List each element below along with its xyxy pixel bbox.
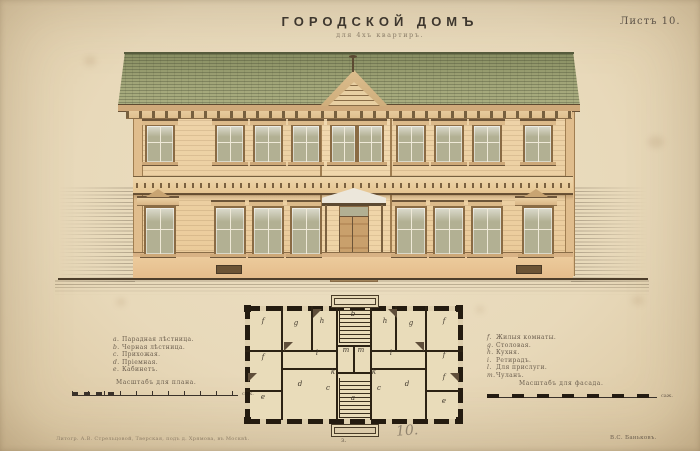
plan-room-label: f	[262, 353, 265, 361]
facade-scale-label: Масштабъ для фасада.	[519, 380, 603, 387]
window-sill	[250, 162, 286, 166]
plan-partition	[281, 306, 283, 420]
window-sill	[354, 162, 387, 166]
plan-room-label: c	[326, 384, 330, 392]
plan-room-label: l	[390, 349, 392, 357]
legend-text: Пріемная.	[122, 359, 158, 366]
plan-porch-top	[331, 295, 379, 308]
facade-window-lower	[214, 206, 246, 256]
canopy-post-left	[325, 205, 327, 253]
lithograph-plate: ГОРОДСКОЙ ДОМЪ для 4хъ квартиръ. Листъ 1…	[0, 0, 700, 451]
legend-key: e.	[113, 366, 122, 374]
plan-wall-corner	[456, 305, 463, 312]
facade-window-upper	[215, 124, 245, 164]
facade-window-upper	[330, 124, 357, 164]
window-hood	[212, 119, 248, 125]
window-hood	[468, 200, 502, 206]
legend-item: c.Прихожая.	[113, 351, 243, 359]
legend-right: f.Жилыя комнаты. g.Столовая. h.Кухня. i.…	[487, 334, 617, 380]
plan-room-label: a	[351, 394, 355, 402]
page-subtitle: для 4хъ квартиръ.	[230, 31, 530, 39]
legend-key: b.	[113, 344, 122, 352]
sky-hatching-left	[55, 186, 135, 282]
plan-scale-ruler	[72, 395, 238, 396]
legend-text: Ретирадъ.	[496, 357, 531, 364]
facade-window-lower	[433, 206, 465, 256]
legend-text: Для прислуги.	[496, 364, 547, 371]
legend-item: a.Парадная лѣстница.	[113, 336, 243, 344]
plan-partition	[425, 390, 460, 392]
plan-partition	[370, 350, 463, 352]
legend-text: Кабинетъ.	[122, 366, 158, 373]
window-hood	[211, 200, 245, 206]
facade-window-lower	[252, 206, 284, 256]
eave-brackets	[126, 111, 572, 119]
legend-key: a.	[113, 336, 122, 344]
legend-key: g.	[487, 342, 496, 350]
facade-window-upper	[434, 124, 464, 164]
facade-window-upper	[357, 124, 384, 164]
legend-key: d.	[113, 359, 122, 367]
legend-item: g.Столовая.	[487, 342, 617, 350]
legend-left: a.Парадная лѣстница. b.Черная лѣстница. …	[113, 336, 243, 374]
plan-room-label: d	[298, 380, 302, 388]
window-sill	[469, 162, 505, 166]
window-hood	[249, 200, 283, 206]
plan-partition	[370, 368, 427, 370]
plan-partition	[245, 390, 283, 392]
plan-partition	[281, 368, 338, 370]
lithographer-imprint: Литогр. А.В. Стрельцовой, Тверская, подъ…	[56, 436, 249, 442]
facade-window-lower	[522, 206, 554, 256]
window-sill	[212, 162, 248, 166]
canopy-post-right	[381, 205, 383, 253]
sky-hatching-right	[571, 186, 651, 282]
mid-cornice-dentils	[136, 183, 570, 188]
plan-wall-corner	[456, 417, 463, 424]
basement-vent-left	[216, 265, 242, 274]
sheet-number: Листъ 10.	[620, 16, 690, 27]
window-hood	[430, 200, 464, 206]
window-hood	[392, 200, 426, 206]
window-hood	[469, 119, 505, 125]
plan-partition	[353, 345, 355, 374]
ground-line	[58, 278, 648, 280]
plan-wall-corner	[244, 417, 251, 424]
window-sill	[520, 162, 556, 166]
page-title: ГОРОДСКОЙ ДОМЪ	[230, 14, 530, 29]
legend-text: Прихожая.	[122, 351, 160, 358]
window-sill	[431, 162, 467, 166]
plan-wall-corner	[244, 305, 251, 312]
facade-window-lower	[290, 206, 322, 256]
legend-key: m.	[487, 372, 496, 380]
window-sill	[140, 254, 176, 258]
facade-window-lower	[471, 206, 503, 256]
window-hood	[287, 200, 321, 206]
window-hood	[393, 119, 429, 125]
window-hood	[142, 119, 178, 125]
window-sill	[288, 162, 324, 166]
handwritten-sheet-number: 10.	[395, 422, 418, 440]
window-sill	[518, 254, 554, 258]
plinth	[133, 257, 573, 278]
plan-room-label: l	[316, 349, 318, 357]
window-hood	[431, 119, 467, 125]
plan-room-label: c	[377, 384, 381, 392]
facade-window-upper	[145, 124, 175, 164]
paper-stain	[632, 296, 644, 305]
paper-stain	[116, 298, 126, 306]
ground-hatching	[55, 280, 649, 295]
plan-room-label: g	[409, 319, 413, 327]
legend-item: f.Жилыя комнаты.	[487, 334, 617, 342]
plan-outer-wall	[458, 306, 463, 424]
plan-room-label: g	[294, 319, 298, 327]
facade-scale-blocks	[487, 394, 658, 398]
plan-partition	[245, 350, 338, 352]
plan-scale-blocks	[72, 392, 121, 395]
window-sill	[467, 254, 503, 258]
legend-item: m.Чуланъ.	[487, 372, 617, 380]
plan-partition	[336, 306, 338, 420]
window-sill	[393, 162, 429, 166]
paper-stain	[84, 56, 96, 66]
legend-item: b.Черная лѣстница.	[113, 344, 243, 352]
legend-key: h.	[487, 349, 496, 357]
facade-window-lower	[144, 206, 176, 256]
window-hood	[520, 119, 556, 125]
plan-room-label: f	[443, 373, 446, 381]
basement-vent-right	[516, 265, 542, 274]
legend-key: c.	[113, 351, 122, 359]
plan-room-label: k	[331, 368, 335, 376]
window-pediment	[515, 196, 557, 206]
window-sill	[286, 254, 322, 258]
legend-text: Черная лѣстница.	[122, 344, 185, 351]
paper-stain	[648, 136, 664, 148]
plan-scale-label: Масштабъ для плана.	[116, 379, 196, 386]
facade-window-upper	[253, 124, 283, 164]
plan-porch-bottom	[331, 424, 379, 437]
plan-room-label: m	[358, 346, 365, 354]
window-sill	[210, 254, 246, 258]
window-sill	[142, 162, 178, 166]
legend-text: Парадная лѣстница.	[122, 336, 194, 343]
legend-item: h.Кухня.	[487, 349, 617, 357]
window-sill	[429, 254, 465, 258]
paper-stain	[476, 306, 484, 313]
plan-room-label: d	[405, 380, 409, 388]
facade-window-upper	[523, 124, 553, 164]
legend-key: f.	[487, 334, 496, 342]
header: ГОРОДСКОЙ ДОМЪ для 4хъ квартиръ.	[230, 14, 530, 39]
plan-room-label: m	[343, 346, 350, 354]
legend-item: i.Ретирадъ.	[487, 357, 617, 365]
gable-finial-tip	[349, 55, 357, 58]
window-sill	[391, 254, 427, 258]
window-hood	[288, 119, 324, 125]
plan-room-label: h	[320, 317, 325, 325]
plan-partition	[311, 306, 313, 352]
legend-key: l.	[487, 364, 496, 372]
facade-window-upper	[396, 124, 426, 164]
gable-finial	[352, 58, 354, 72]
plan-room-label: f	[443, 317, 446, 325]
plan-outer-wall	[245, 306, 250, 424]
plan-room-label: f	[262, 317, 265, 325]
window-pediment	[137, 196, 179, 206]
plan-partition	[336, 372, 372, 374]
facade-scale-unit: саж.	[661, 393, 673, 399]
plan-partition	[425, 306, 427, 420]
roof-ridge	[124, 52, 574, 54]
entrance-canopy-edge	[322, 203, 386, 204]
window-hood	[250, 119, 286, 125]
plan-room-label: e	[442, 397, 446, 405]
legend-key: i.	[487, 357, 496, 365]
legend-text: Жилыя комнаты.	[496, 334, 556, 341]
plan-room-label: f	[443, 351, 446, 359]
plan-room-label: h	[383, 317, 388, 325]
legend-item: e.Кабинетъ.	[113, 366, 243, 374]
legend-text: Чуланъ.	[496, 372, 524, 379]
legend-text: Столовая.	[496, 342, 531, 349]
facade-window-upper	[472, 124, 502, 164]
legend-item: d.Пріемная.	[113, 359, 243, 367]
facade-window-lower	[395, 206, 427, 256]
legend-text: Кухня.	[496, 349, 520, 356]
legend-item: l.Для прислуги.	[487, 364, 617, 372]
facade-window-upper	[291, 124, 321, 164]
plan-room-label: e	[261, 393, 265, 401]
window-hood	[354, 119, 387, 125]
plan-room-label: k	[372, 368, 376, 376]
plan-room-label: b	[351, 310, 355, 318]
plan-partition	[336, 345, 372, 347]
window-sill	[248, 254, 284, 258]
author-signature: В.С. Баньковъ.	[610, 435, 657, 441]
plate-mark: з.	[341, 437, 346, 444]
